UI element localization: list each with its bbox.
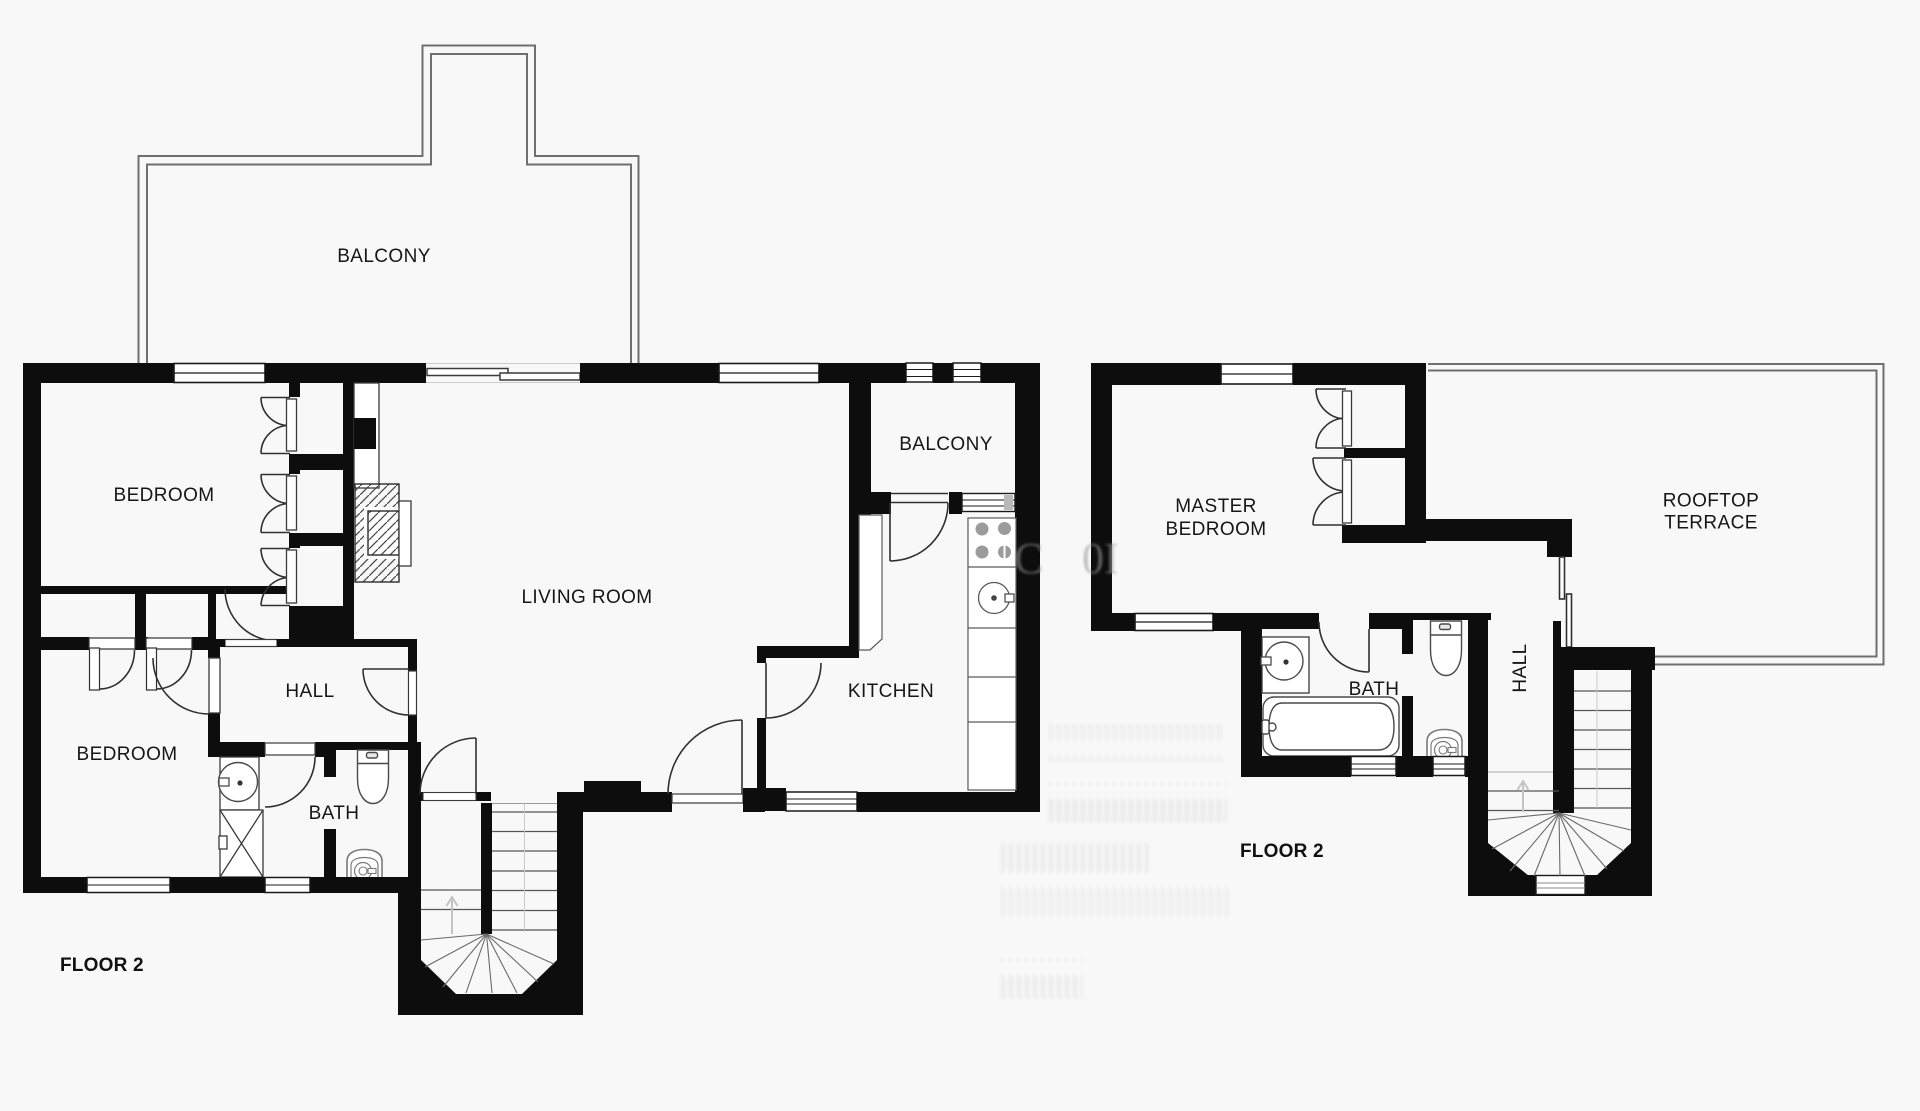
svg-text:BEDROOM: BEDROOM [77, 744, 178, 765]
svg-text:MASTER: MASTER [1175, 496, 1257, 517]
svg-text:TERRACE: TERRACE [1664, 513, 1758, 534]
svg-text:KITCHEN: KITCHEN [848, 681, 934, 702]
svg-text:FLOOR 2: FLOOR 2 [60, 955, 144, 976]
svg-text:BEDROOM: BEDROOM [114, 485, 215, 506]
svg-text:BALCONY: BALCONY [337, 246, 431, 267]
svg-text:BALCONY: BALCONY [899, 434, 993, 455]
svg-text:FLOOR 2: FLOOR 2 [1240, 841, 1324, 862]
svg-text:HALL: HALL [285, 681, 334, 702]
svg-text:BATH: BATH [309, 803, 360, 824]
svg-text:ROOFTOP: ROOFTOP [1663, 491, 1759, 512]
svg-text:LIVING ROOM: LIVING ROOM [521, 587, 652, 608]
svg-text:C: C [1014, 534, 1043, 583]
svg-text:HALL: HALL [1510, 643, 1531, 692]
svg-text:BEDROOM: BEDROOM [1166, 519, 1267, 540]
svg-text:0I: 0I [1082, 534, 1119, 583]
